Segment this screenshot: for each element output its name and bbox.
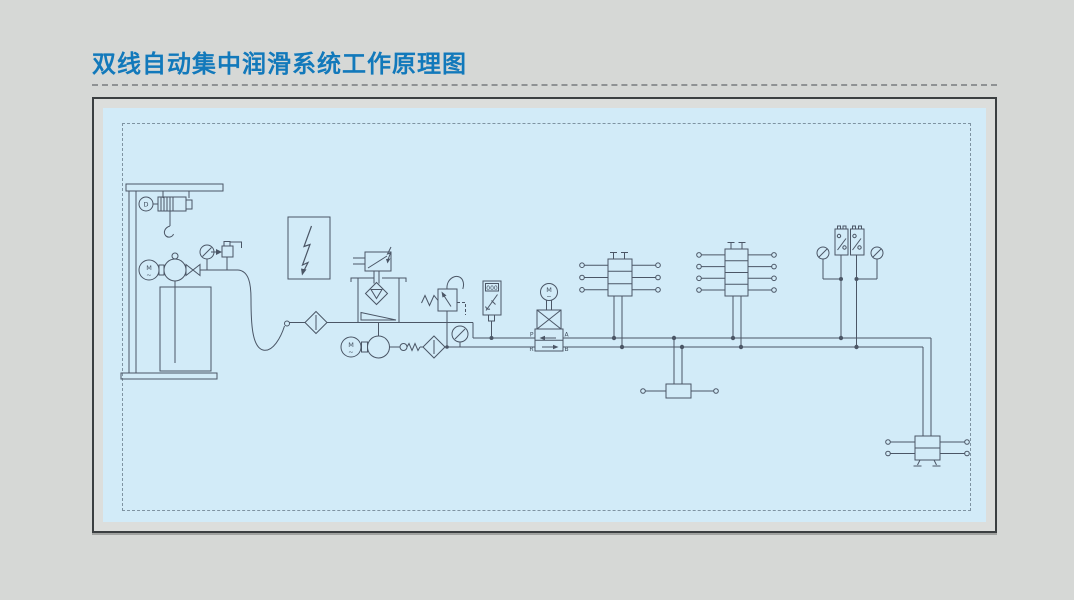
page-title: 双线自动集中润滑系统工作原理图 <box>92 44 467 79</box>
diagram-panel <box>103 108 986 522</box>
title-divider <box>92 84 997 86</box>
diagram-frame <box>92 97 997 533</box>
diagram-dashed-border <box>122 123 971 511</box>
page: { "title": "双线自动集中润滑系统工作原理图", "colors": … <box>0 0 1074 600</box>
